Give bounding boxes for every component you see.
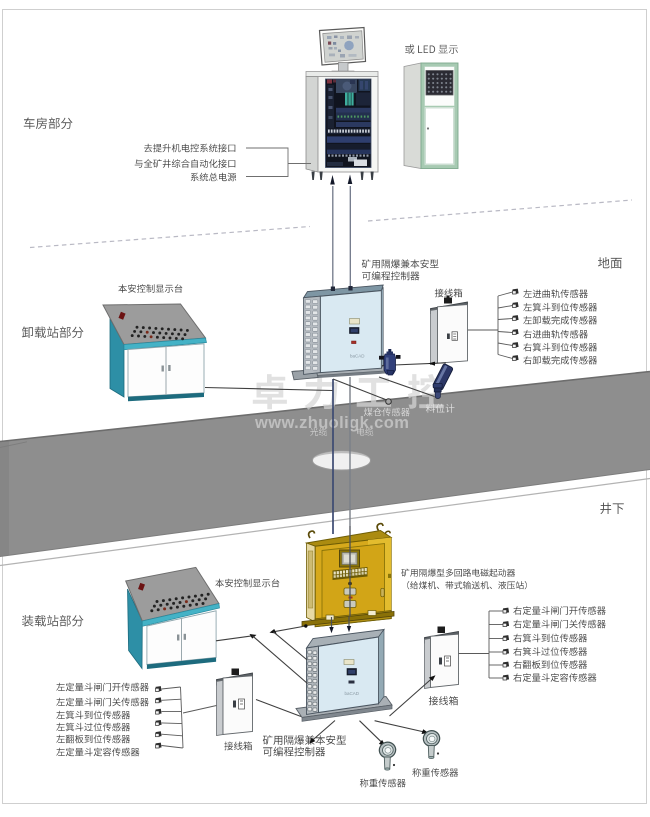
svg-text:baCAD: baCAD xyxy=(350,354,365,359)
svg-text:www.zhuoligk.com: www.zhuoligk.com xyxy=(254,414,409,432)
svg-text:baCAD: baCAD xyxy=(345,691,360,696)
